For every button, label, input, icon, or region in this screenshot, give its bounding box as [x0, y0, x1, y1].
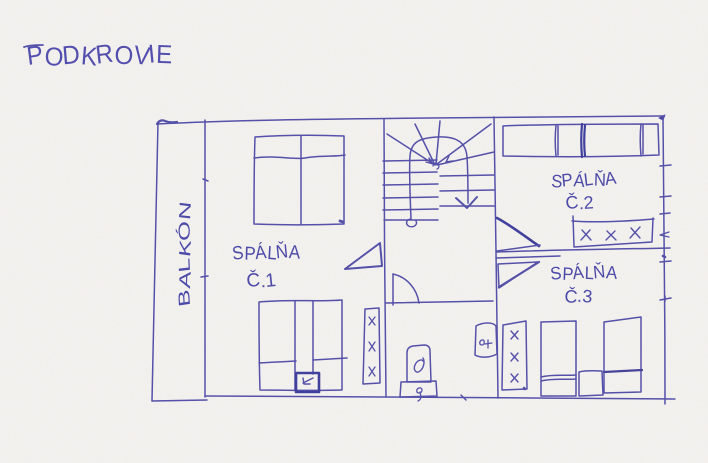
svg-text:PODKROVIE: PODKROVIE	[25, 37, 174, 74]
svg-text:Č.3: Č.3	[564, 285, 593, 307]
